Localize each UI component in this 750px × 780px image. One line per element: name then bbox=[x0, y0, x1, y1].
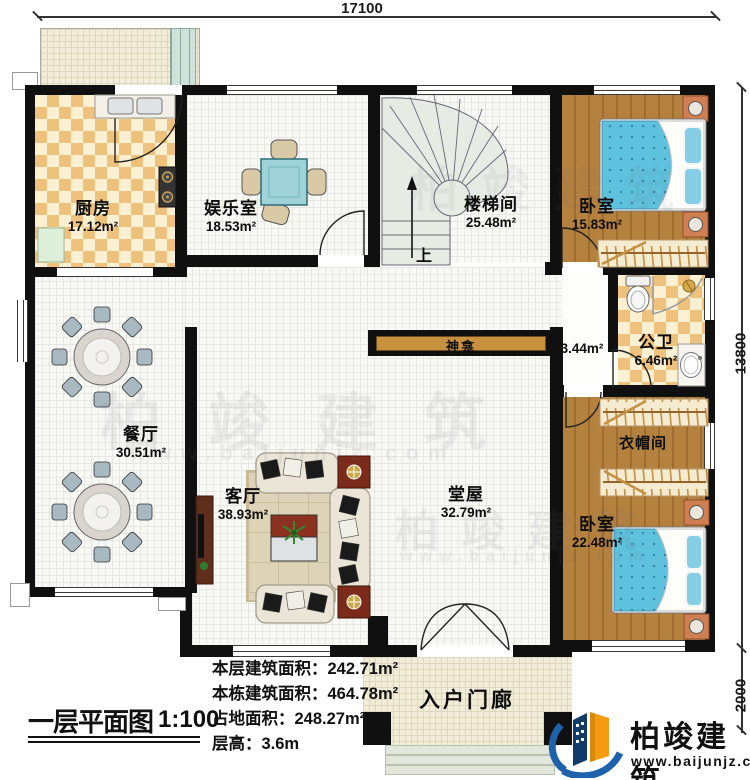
kitchen-counter bbox=[95, 95, 175, 118]
porch-label: 入户门廊 bbox=[419, 684, 515, 714]
plan-title: 一层平面图 bbox=[28, 702, 153, 739]
room-label-bathroom: 公卫 6.46m² bbox=[635, 328, 678, 368]
room-label-living: 客厅 38.93m² bbox=[218, 482, 268, 522]
room-label-dining: 餐厅 30.51m² bbox=[116, 420, 166, 460]
bedroom-top-door-arc bbox=[562, 228, 602, 268]
bed bbox=[612, 500, 709, 639]
corridor-area-label: 3.44m² bbox=[561, 341, 604, 356]
kitchen-fixtures bbox=[38, 95, 176, 262]
entertainment-door-arc bbox=[320, 211, 364, 255]
dining-table bbox=[52, 307, 152, 407]
end-table bbox=[338, 456, 370, 488]
pillow bbox=[686, 572, 702, 606]
company-name: 柏竣建筑 bbox=[630, 712, 750, 780]
room-label-cloakroom: 衣帽间 bbox=[619, 432, 667, 453]
kitchen-sink bbox=[137, 98, 162, 114]
end-table bbox=[338, 586, 370, 618]
dining-table bbox=[52, 462, 152, 562]
room-label-kitchen: 厨房 17.12m² bbox=[68, 194, 118, 234]
kitchen-sink bbox=[108, 98, 133, 114]
room-label-entertainment: 娱乐室 18.53m² bbox=[204, 194, 258, 234]
cloakroom-door-arc bbox=[566, 392, 601, 427]
toilet-tank bbox=[626, 276, 650, 286]
coffee-table bbox=[271, 515, 317, 561]
tv-cabinet bbox=[196, 496, 213, 584]
area-stats: 本层建筑面积：242.71m² 本栋建筑面积：464.78m² 占地面积：248… bbox=[212, 655, 398, 755]
room-label-bedroom-bottom: 卧室 22.48m² bbox=[572, 510, 622, 550]
pillow bbox=[686, 535, 702, 569]
stat-row: 本栋建筑面积：464.78m² bbox=[212, 680, 398, 705]
building-swoosh-icon bbox=[543, 708, 629, 778]
wardrobe-rack bbox=[600, 399, 708, 426]
plan-scale: 1:100 bbox=[158, 706, 219, 734]
wardrobe-rack bbox=[600, 469, 708, 496]
company-website: www.baijunjz.com bbox=[631, 753, 750, 769]
pillow bbox=[684, 168, 702, 205]
tv bbox=[198, 514, 204, 558]
stair-direction-label: 上 bbox=[416, 242, 432, 266]
stat-row: 本层建筑面积：242.71m² bbox=[212, 655, 398, 680]
pillow bbox=[684, 127, 702, 164]
staircase bbox=[382, 95, 508, 265]
room-label-hall: 堂屋 32.79m² bbox=[441, 480, 491, 520]
entry-double-door bbox=[421, 604, 509, 650]
plant bbox=[200, 562, 208, 570]
floor-plan-canvas: 17100 13800 2000 bbox=[0, 0, 750, 780]
shrine-label: 神龛 bbox=[446, 336, 476, 355]
stat-row: 占地面积：248.27m² bbox=[212, 705, 398, 730]
stat-row: 层高：3.6m bbox=[212, 730, 398, 755]
fridge bbox=[38, 228, 64, 262]
wardrobe-rack bbox=[598, 240, 708, 267]
room-label-stairwell: 楼梯间 25.48m² bbox=[464, 190, 518, 230]
room-label-bedroom-top: 卧室 15.83m² bbox=[572, 192, 622, 232]
